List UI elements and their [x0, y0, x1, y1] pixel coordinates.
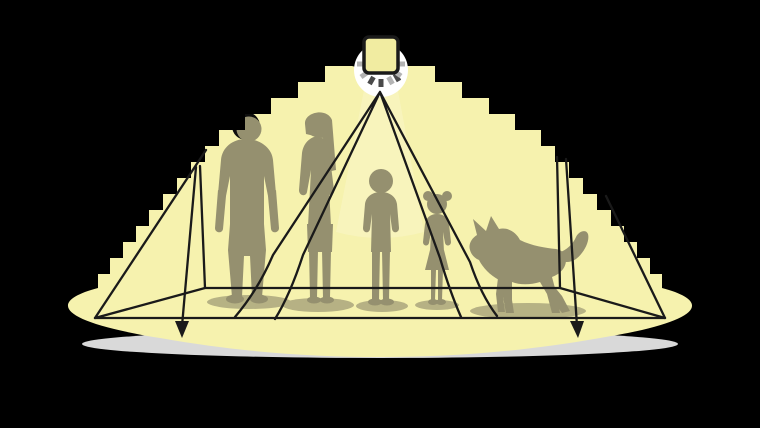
sensor-coverage-illustration — [0, 0, 760, 428]
motion-sensor-icon — [364, 37, 398, 73]
scene-canvas — [0, 0, 760, 428]
